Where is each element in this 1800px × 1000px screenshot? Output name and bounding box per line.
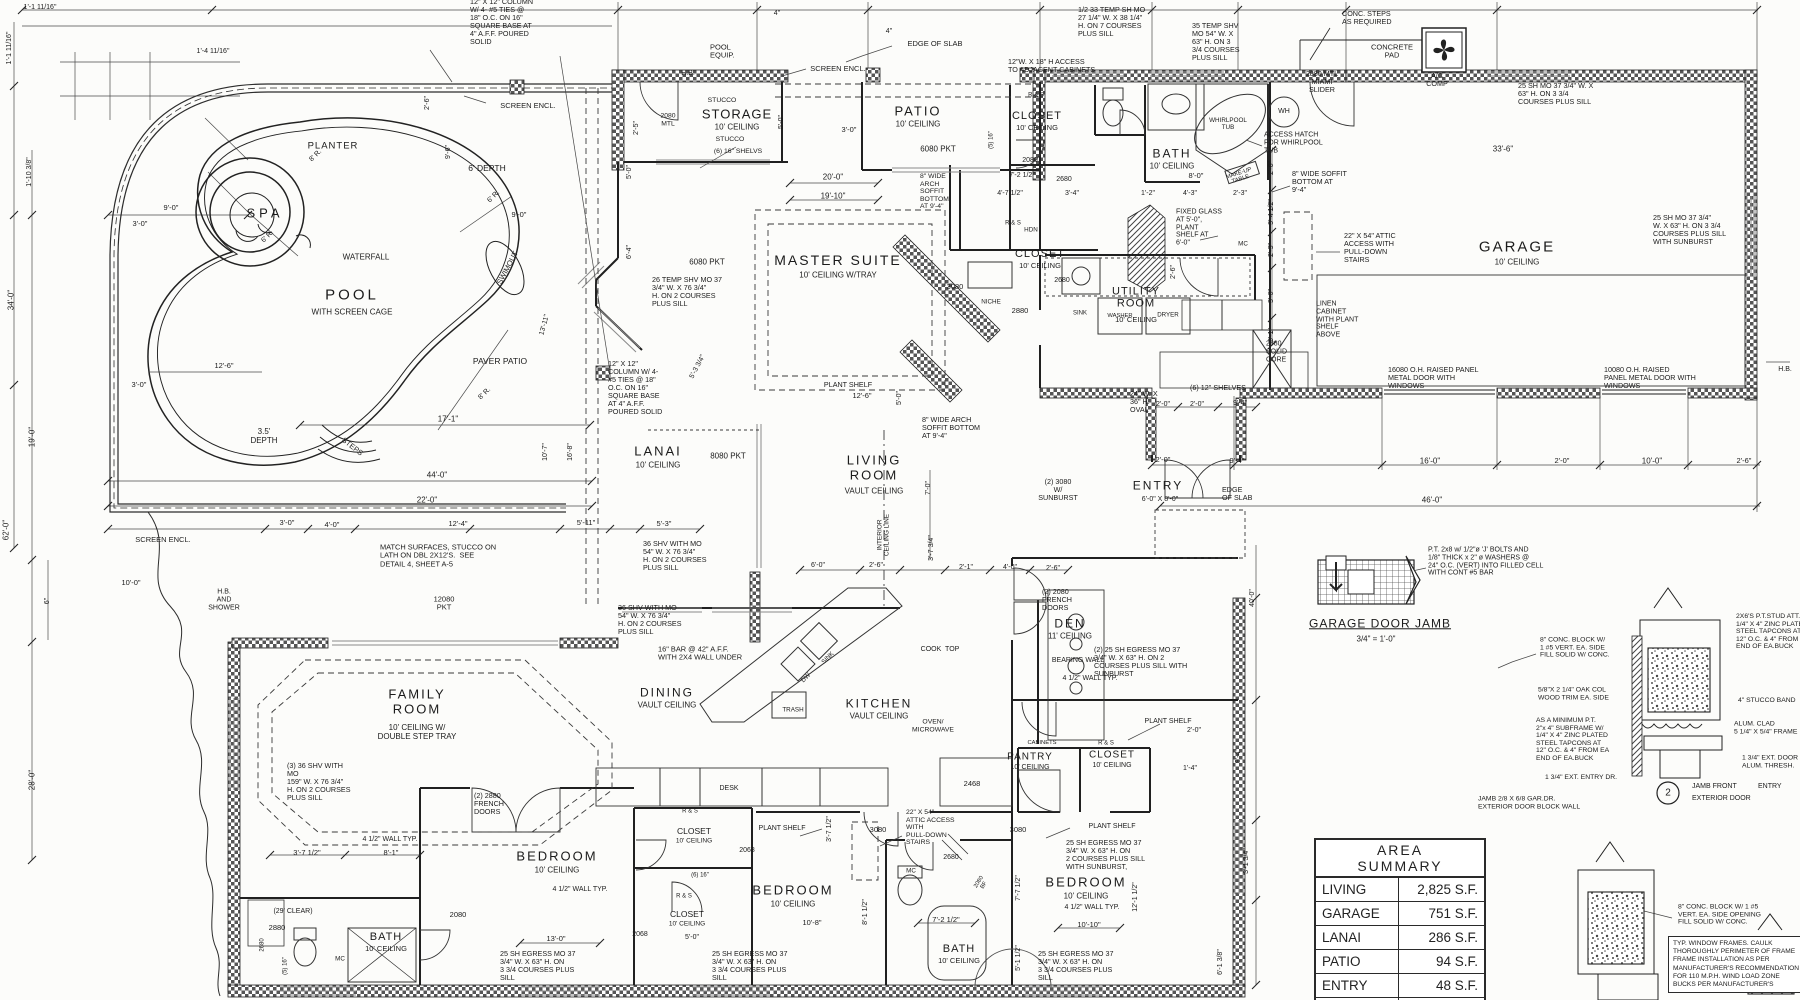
dim-10-8: 10'-8": [802, 919, 821, 927]
dim-7-2c: 7'-2 1/2": [1009, 172, 1035, 180]
note-miami-slider: 2880 MTL MIAMI SLIDER: [1306, 70, 1338, 94]
note-jamb-gar: JAMB 2/8 X 6/8 GAR.DR. EXTERIOR DOOR BLO…: [1478, 795, 1580, 810]
room-patio: PATIO: [894, 105, 941, 120]
dim-46-0: 46'-0": [1422, 497, 1442, 506]
dim-12-6-b: 12'-6": [852, 392, 871, 400]
note-screen-encl-1: SCREEN ENCL.: [500, 102, 555, 110]
note-oven: OVEN/ MICROWAVE: [912, 718, 954, 733]
dim-2680-c1: 2680: [1056, 176, 1072, 184]
dim-3-1r: 3'-1": [1268, 328, 1276, 342]
note-column-1: 12" X 12" COLUMN W/ 4- #5 TIES @ 18" O.C…: [470, 0, 533, 46]
note-hb-shower: H.B. AND SHOWER: [208, 588, 240, 611]
dim-2-0b: 2'-0": [1156, 456, 1171, 464]
dim-corner-4: 1'-10 3/8": [26, 157, 34, 187]
note-sh25-right: 25 SH MO 37 3/4" W. X 63" H. ON 3 3/4 CO…: [1653, 214, 1726, 246]
dim-corner-2: 1'-1 11/16": [6, 32, 14, 65]
note-shelv-16: (6) 16" SHELVS: [714, 148, 762, 156]
note-depth-35: 3.5' DEPTH: [250, 428, 277, 446]
note-cook-top: COOK TOP: [921, 646, 960, 654]
room-entry: ENTRY: [1133, 479, 1183, 492]
dim-2880-m: 2880: [1012, 307, 1029, 315]
note-french-den: (2) 2080 FRENCH DOORS: [1042, 588, 1072, 612]
room-bath-left: BATH: [370, 931, 403, 943]
dim-4-7c: 4'-7 1/2": [997, 190, 1023, 198]
note-attic-2: 22" X 54" ATTIC ACCESS WITH PULL-DOWN ST…: [906, 809, 955, 847]
room-bath-master: BATH: [1152, 147, 1191, 160]
dim-3-41r: 3'-4 1/2": [1268, 199, 1276, 225]
room-pantry-sub: 10' CEILING: [1010, 764, 1049, 772]
area-value: 286 S.F.: [1398, 926, 1484, 950]
note-hdn: HDN: [1024, 226, 1038, 233]
dim-9-4r: 9'-4": [1235, 749, 1243, 763]
dim-2068-a: 2068: [739, 847, 755, 855]
note-rs-3: R & S: [682, 809, 698, 816]
dim-10-7r: 10'-7": [542, 443, 550, 461]
note-soffit-garage: 8" WIDE SOFFIT BOTTOM AT 9'-4": [1292, 170, 1347, 194]
note-screen-encl-3: SCREEN ENCL.: [135, 536, 190, 544]
dim-10-0: 10'-0": [1642, 458, 1662, 467]
dim-8-1: 8'-1": [384, 849, 399, 857]
room-closet3: CLOSET: [1089, 749, 1135, 760]
room-utility: UTILITY ROOM: [1112, 286, 1160, 311]
dim-16-0: 16'-0": [1420, 458, 1440, 467]
area-value: 94 S.F.: [1398, 950, 1484, 974]
dim-4-0: 4'-0": [1003, 564, 1017, 572]
dim-2680-c: 2680: [943, 854, 959, 862]
note-access-hatch: ACCESS HATCH FOR WHIRLPOOL TUB: [1264, 131, 1323, 154]
note-french-bed1: (2) 2880 FRENCH DOORS: [474, 792, 504, 816]
dim-4a: 4": [774, 10, 780, 18]
note-family-shv: (3) 36 SHV WITH MO 159" W. X 76 3/4" H. …: [287, 762, 351, 802]
dim-4b: 4": [886, 28, 892, 36]
room-pool-sub: WITH SCREEN CAGE: [312, 309, 393, 318]
area-label: LIVING: [1316, 878, 1398, 902]
dim-5-0r2: 5'-0": [626, 165, 634, 179]
note-access-cab: 12"W. X 18" H ACCESS TO ADJACENT CABINET…: [1008, 58, 1095, 74]
dim-34-0: 34'-0": [8, 290, 17, 310]
dim-2-3r: 2'-3": [1268, 243, 1276, 257]
dim-8080: 8080 PKT: [710, 453, 746, 462]
dim-17-1: 17'-1": [438, 416, 458, 425]
area-label: GARAGE: [1316, 902, 1398, 926]
note-sink-k: SINK: [820, 650, 835, 665]
dim-7-7r: 7'-7 1/2": [1015, 875, 1023, 901]
room-dining: DINING: [640, 686, 694, 699]
note-edge-slab-2: EDGE OF SLAB: [1222, 486, 1252, 502]
note-sink-utility: SINK: [1073, 311, 1087, 318]
note-arch-soffit-2: 8" WIDE ARCH SOFFIT BOTTOM AT 9'-4": [922, 416, 980, 440]
room-entry-sub: 6'-0" X 8'-0": [1142, 496, 1178, 504]
room-closet1: CLOSET: [1012, 110, 1062, 122]
note-rs-5: R & S: [1098, 741, 1114, 748]
note-jamb-entry: ENTRY: [1758, 783, 1782, 791]
table-row: LIVING2,825 S.F.: [1316, 878, 1484, 902]
dim-5-11: 5'-11": [577, 519, 596, 527]
note-temp-shv-26: 26 TEMP SHV MO 37 3/4" W. X 76 3/4" H. O…: [652, 276, 722, 308]
note-oak-trim: 5/8"X 2 1/4" OAK COL WOOD TRIM EA. SIDE: [1538, 686, 1609, 701]
note-screen-encl-2: SCREEN ENCL.: [810, 65, 865, 73]
dim-20-0: 20'-0": [823, 174, 843, 183]
note-swimout: SWIMOUT: [496, 250, 520, 286]
note-match: MATCH SURFACES, STUCCO ON LATH ON DBL 2X…: [380, 544, 496, 569]
room-living-sub: VAULT CEILING: [845, 488, 904, 497]
table-row: LANAI286 S.F.: [1316, 926, 1484, 950]
dim-16-8r: 16'-8": [567, 443, 575, 461]
dim-10-10: 10'-10": [1077, 921, 1100, 929]
room-closet1-sub: 10' CEILING: [1016, 124, 1058, 132]
note-stucco-1: STUCCO: [708, 97, 737, 105]
note-shelves-12: (6) 12" SHELVES: [1190, 384, 1246, 392]
note-ac-comp: A/C COMP: [1426, 72, 1448, 88]
dim-5-3: 5'-3": [657, 520, 672, 528]
note-egress-sunburst: 25 SH EGRESS MO 37 3/4" W. X 63" H. ON 2…: [1066, 839, 1145, 871]
dim-2880-l: 2880: [269, 924, 286, 932]
note-egress-2: 25 SH EGRESS MO 37 3/4" W. X 63" H. ON 3…: [712, 950, 788, 982]
note-alum-thresh: 1 3/4" EXT. DOOR ALUM. THRESH.: [1742, 754, 1798, 769]
dim-6080-patio: 6080 PKT: [920, 146, 956, 155]
note-mc-2: MC: [906, 867, 916, 874]
dim-9-6r: 9'-6": [445, 145, 453, 159]
note-alum-clad: ALUM. CLAD 5 1/4" X 5/4" FRAME: [1734, 720, 1797, 735]
room-bed2-sub: 10' CEILING: [771, 901, 816, 910]
note-hb-right: H.B.: [1778, 366, 1792, 374]
room-closet-s1-sub: 10' CEILING: [676, 837, 712, 844]
note-steps: STEPS: [340, 436, 365, 458]
room-closet2: CLOSET: [1015, 248, 1065, 260]
note-jamb-front: JAMB FRONT: [1692, 783, 1737, 791]
note-clear-29: (29' CLEAR): [273, 908, 312, 916]
dim-3080-m: 3080: [947, 283, 964, 291]
dim-1-2: 1'-2": [1141, 190, 1155, 198]
note-paver-patio: PAVER PATIO: [473, 357, 527, 367]
dim-6r-b: 6' R.: [260, 229, 276, 245]
dim-9-0a: 9'-0": [164, 204, 179, 212]
dim-5-0-c: 5'-0": [685, 934, 699, 942]
dim-3-73r: 3'-7 3/4": [928, 535, 936, 561]
note-plant-shelf-4: PLANT SHELF: [1145, 718, 1192, 726]
room-den: DEN: [1054, 617, 1085, 630]
window-frames-note: TYP. WINDOW FRAMES. CAULK THOROUGHLY PER…: [1668, 936, 1800, 993]
dim-4-3: 4'-3": [1183, 190, 1197, 198]
room-storage-sub: 10' CEILING: [715, 124, 760, 133]
room-lanai-sub: 10' CEILING: [636, 462, 681, 471]
note-door-16080: 16080 O.H. RAISED PANEL METAL DOOR WITH …: [1388, 366, 1479, 390]
dim-8-0: 8'-0": [1189, 172, 1204, 180]
note-mc-3: MC: [335, 955, 345, 962]
note-wall-typ-b: 4 1/2" WALL TYP.: [552, 886, 607, 894]
room-closet-s1: CLOSET: [677, 827, 711, 837]
note-fixed-glass: FIXED GLASS AT 5'-0", PLANT SHELF AT 6'-…: [1176, 208, 1222, 247]
note-dryer: DRYER: [1157, 313, 1179, 320]
dim-6-4r: 6'-4": [626, 245, 634, 259]
dim-2-5r: 2'-5": [633, 121, 641, 135]
note-edge-slab-1: EDGE OF SLAB: [907, 40, 962, 48]
dim-corner-1: 1'-1 11/16": [24, 4, 57, 12]
room-bath-left-sub: 10' CEILING: [365, 945, 407, 953]
room-pool: POOL: [325, 288, 379, 305]
room-closet-s2-sub: 10' CEILING: [669, 920, 705, 927]
note-attic-1: 22" X 54" ATTIC ACCESS WITH PULL-DOWN ST…: [1344, 232, 1396, 264]
note-516: (5) 16": [283, 957, 290, 975]
dim-2-0e: 2'-0": [1187, 727, 1201, 735]
dim-3-7-f: 3'-7 1/2": [293, 849, 320, 857]
dim-9-4a: 9'-4": [1230, 457, 1245, 465]
dim-5-33r: 5'-3 3/4": [689, 354, 708, 380]
dim-2080-c1: 2080: [1022, 157, 1038, 165]
note-pt-2x8: P.T. 2x8 w/ 1/2"ø 'J' BOLTS AND 1/8" THI…: [1428, 546, 1543, 577]
note-rs-2: R & S: [1005, 221, 1021, 228]
note-whirlpool: WHIRLPOOL TUB: [1209, 117, 1247, 131]
note-rs-1: R & S: [1028, 93, 1044, 100]
dim-6-0: 6'-0": [811, 562, 825, 570]
note-hb-1: H.B.: [681, 70, 695, 78]
dim-2-3: 2'-3": [1233, 190, 1247, 198]
room-garage-sub: 10' CEILING: [1495, 259, 1540, 268]
detail-2-number: 2: [1665, 787, 1671, 798]
room-kitchen: KITCHEN: [846, 697, 913, 710]
dim-13-0: 13'-0": [546, 935, 565, 943]
floor-plan-sheet: SPAPOOLWITH SCREEN CAGEPLANTERWATERFALLS…: [0, 0, 1800, 1000]
note-bar16: 16" BAR @ 42" A.F.F. WITH 2X4 WALL UNDER: [658, 646, 742, 663]
room-living: LIVING ROOM: [847, 453, 902, 482]
dim-6-1r: 6'-1 3/8": [1217, 949, 1225, 975]
dim-2-6r2: 2'-6": [424, 96, 432, 110]
room-master-sub: 10' CEILING W/TRAY: [799, 272, 876, 281]
dim-5-0r3: 5'-0": [778, 115, 786, 129]
room-bath-center: BATH: [943, 943, 976, 955]
dim-62-0: 62'-0": [3, 520, 12, 540]
area-summary-table: AREA SUMMARY LIVING2,825 S.F.GARAGE751 S…: [1314, 838, 1486, 1000]
note-sunburst-3080: (2) 3080 W/ SUNBURST: [1038, 478, 1078, 502]
dim-3-13r: 3'-1 3/4": [1243, 848, 1251, 874]
room-storage: STORAGE: [702, 108, 772, 123]
dim-7-2: 7'-2 1/2": [932, 916, 959, 924]
dim-28-0: 28'-0": [29, 770, 38, 790]
note-plant-shelf-m: PLANT SHELF: [824, 381, 872, 389]
note-washer: WASHER: [1107, 313, 1132, 319]
dim-3-0r: 3'-0": [1268, 289, 1276, 303]
area-label: ENTRY: [1316, 974, 1398, 998]
note-egress-1: 25 SH EGRESS MO 37 3/4" W. X 63" H. ON 3…: [500, 950, 576, 982]
note-temp-sh-12: 1/2 33 TEMP SH MO 27 1/4" W. X 38 1/4" H…: [1078, 6, 1145, 38]
note-column-2: 12" X 12" COLUMN W/ 4- #5 TIES @ 18" O.C…: [608, 360, 662, 416]
dim-2080-mtl: 2080 MTL: [660, 112, 675, 127]
dim-19-10: 19'-10": [821, 193, 846, 202]
dim-6r-a: 6' R.: [486, 189, 502, 205]
note-conc-block-2: 8" CONC. BLOCK W/ 1 #5 VERT. EA. SIDE OP…: [1678, 904, 1761, 927]
room-closet-s2: CLOSET: [670, 910, 704, 920]
room-bath-center-sub: 10' CEILING: [938, 957, 980, 965]
dim-2-6b: 2'-6": [1046, 565, 1060, 573]
dim-10-0b: 10'-0": [121, 579, 140, 587]
room-family-sub: 10' CEILING W/ DOUBLE STEP TRAY: [378, 724, 457, 742]
dim-3-0b: 3'-0": [280, 519, 295, 527]
note-depth-6: 6' DEPTH: [468, 164, 506, 174]
dim-9-4b: 9'-4": [1233, 400, 1247, 408]
dim-2-6r3: 2'-6": [1170, 265, 1178, 279]
dim-6a: 6": [44, 598, 52, 604]
room-den-sub: 11' CEILING: [1048, 633, 1092, 642]
table-row: ENTRY48 S.F.: [1316, 974, 1484, 998]
note-subframe: AS A MINIMUM P.T. 2"x 4" SUBFRAME W/ 1/4…: [1536, 717, 1609, 763]
note-jamb-ext-door: EXTERIOR DOOR: [1692, 795, 1751, 803]
note-wall-typ-f: 4 1/2" WALL TYP.: [362, 836, 417, 844]
dim-2-6r1: 2'-6": [1268, 161, 1276, 175]
room-family: FAMILY ROOM: [388, 687, 445, 716]
dim-8r-b: 8' R.: [477, 386, 493, 402]
note-shv36-1: 36 SHV WITH MO 54" W. X 76 3/4" H. ON 2 …: [643, 540, 707, 572]
note-temp-shv-35: 35 TEMP SHV MO 54" W. X 63" H. ON 3 3/4 …: [1192, 22, 1240, 62]
room-spa: SPA: [246, 207, 283, 222]
room-closet3-sub: 10' CEILING: [1092, 762, 1131, 770]
dim-2-0a: 2'-0": [1555, 457, 1570, 465]
note-cabinets: CABINETS: [1028, 740, 1057, 746]
note-egress-den: (2) 25 SH EGRESS MO 37 3/4" W. X 63" H. …: [1094, 646, 1187, 678]
note-arch-soffit-1: 8" WIDE ARCH SOFFIT BOTTOM AT 9'-4": [920, 173, 949, 211]
room-patio-sub: 10' CEILING: [896, 121, 941, 130]
dim-3080-b: 3080: [1010, 826, 1027, 834]
dim-2680-c2: 2680: [1054, 277, 1070, 285]
room-pantry: PANTRY: [1007, 751, 1053, 762]
dim-3-0d: 3'-0": [133, 220, 148, 228]
note-pool-equip: POOL EQUIP.: [710, 44, 734, 61]
dim-33-6: 33'-6": [1493, 146, 1513, 155]
dim-12080: 12080 PKT: [434, 596, 455, 613]
table-row: PATIO94 S.F.: [1316, 950, 1484, 974]
title-garage-door-jamb-scale: 3/4" = 1'-0": [1356, 636, 1395, 645]
note-concrete-pad: CONCRETE PAD: [1371, 44, 1413, 61]
dim-12-6: 12'-6": [214, 362, 233, 370]
dim-7-0r: 7'-0": [925, 481, 933, 495]
area-value: 48 S.F.: [1398, 974, 1484, 998]
dim-2080-bf: 2080 BF: [973, 875, 991, 893]
dim-12-1r: 12'-1 1/2": [1132, 882, 1140, 912]
dim-2-1: 2'-1": [959, 564, 973, 572]
dim-19-0: 19'-0": [29, 427, 38, 447]
dim-44-0: 44'-0": [427, 472, 447, 481]
room-bed3: BEDROOM: [1045, 876, 1126, 891]
dim-3-4c: 3'-4": [1065, 190, 1079, 198]
note-sh25-top: 25 SH MO 37 3/4" W. X 63" H. ON 3 3/4 CO…: [1518, 82, 1593, 106]
note-616: (6) 16": [691, 873, 709, 880]
dim-2-6a: 2'-6": [869, 562, 883, 570]
note-rs-4: R & S: [676, 894, 692, 901]
area-label: LANAI: [1316, 926, 1398, 950]
area-label: PATIO: [1316, 950, 1398, 974]
dim-2-0c: 2'-0": [1156, 401, 1170, 409]
title-garage-door-jamb: GARAGE DOOR JAMB: [1309, 617, 1451, 630]
note-shv36-2: 36 SHV WITH MO 54" W. X 76 3/4" H. ON 2 …: [618, 604, 682, 636]
room-dining-sub: VAULT CEILING: [638, 702, 697, 711]
note-2x6-stud: 2X6'S P.T.STUD ATT. 1/4" X 4" ZINC PLATE…: [1736, 613, 1800, 651]
dim-2068-b: 2068: [632, 931, 648, 939]
note-conc-steps: CONC. STEPS AS REQUIRED: [1342, 10, 1392, 26]
area-summary-title: AREA SUMMARY: [1316, 840, 1484, 878]
note-conc-block-1: 8" CONC. BLOCK W/ 1 #5 VERT. EA. SIDE FI…: [1540, 637, 1610, 660]
room-bed2: BEDROOM: [752, 884, 833, 899]
dim-2-0d: 2'-0": [1190, 401, 1204, 409]
room-garage: GARAGE: [1479, 240, 1555, 257]
note-ext-entry-dr: 1 3/4" EXT. ENTRY DR.: [1545, 774, 1617, 782]
note-dw: DW: [800, 672, 812, 684]
note-stucco-band: 4" STUCCO BAND: [1738, 697, 1796, 705]
room-bed3-sub: 10' CEILING: [1064, 893, 1109, 902]
note-waterfall: WATERFALL: [343, 254, 390, 263]
dim-3-0a: 3'-0": [842, 126, 857, 134]
room-bed1: BEDROOM: [516, 850, 597, 865]
note-trash: TRASH: [782, 706, 803, 713]
note-makeup: MAKE-UP TABLE: [1225, 167, 1254, 187]
note-wall-typ-r: 4 1/2" WALL TYP.: [1064, 904, 1119, 912]
room-bed1-sub: 10' CEILING: [535, 867, 580, 876]
dim-5-0r: 5'-0": [896, 391, 904, 405]
dim-12-4: 12'-4": [448, 520, 467, 528]
dim-2080-l: 2080: [450, 911, 467, 919]
dim-2-6c: 2'-6": [1737, 457, 1752, 465]
note-egress-3: 25 SH EGRESS MO 37 3/4" W. X 63" H. ON 3…: [1038, 950, 1114, 982]
room-kitchen-sub: VAULT CEILING: [850, 713, 909, 722]
note-desk: DESK: [719, 785, 738, 793]
note-solid-core: 2880 SOLID CORE: [1266, 340, 1287, 363]
area-value: 751 S.F.: [1398, 902, 1484, 926]
dim-8-1r: 8'-1 1/2": [862, 899, 870, 925]
dim-3-0c: 3'-0": [132, 381, 147, 389]
note-linen: LINEN CABINET WITH PLANT SHELF ABOVE: [1316, 300, 1358, 339]
area-value: 2,825 S.F.: [1398, 878, 1484, 902]
area-summary-rows: LIVING2,825 S.F.GARAGE751 S.F.LANAI286 S…: [1316, 878, 1484, 1000]
table-row: GARAGE751 S.F.: [1316, 902, 1484, 926]
note-plant-shelf-2: PLANT SHELF: [759, 825, 806, 833]
dim-4-0b: 4'-0": [325, 521, 340, 529]
dim-3-7r: 3'-7 1/2": [826, 816, 834, 842]
dim-corner-3: 1'-4 11/16": [197, 48, 230, 56]
dim-13-11r: 13'-11": [538, 314, 551, 337]
dim-6080-master: 6080 PKT: [689, 259, 725, 268]
note-plant-shelf-3: PLANT SHELF: [1089, 823, 1136, 831]
note-niche: NICHE: [981, 298, 1001, 305]
note-mc-1: MC: [1238, 240, 1248, 247]
room-lanai: LANAI: [634, 445, 682, 460]
note-516c: (5) 16": [989, 131, 996, 149]
dim-22-0: 22'-0": [417, 497, 437, 506]
room-closet2-sub: 10' CEILING: [1019, 262, 1061, 270]
dim-3080-a: 3080: [870, 826, 887, 834]
note-stucco-2: STUCCO: [716, 136, 745, 144]
room-master: MASTER SUITE: [774, 253, 901, 269]
dim-1-4: 1'-4": [1183, 765, 1197, 773]
note-door-10080: 10080 O.H. RAISED PANEL METAL DOOR WITH …: [1604, 366, 1696, 390]
dim-9-0b: 9'-0": [512, 211, 527, 219]
dim-2680-l: 2680: [260, 938, 267, 951]
note-interior-ceiling: INTERIOR CEILING LINE: [877, 514, 892, 556]
dim-5-1r: 5'-1 1/2": [1015, 945, 1023, 971]
note-oval: 24" W. X 36" H. OVAL: [1130, 390, 1158, 414]
dim-2468: 2468: [964, 780, 981, 788]
note-wh: WH: [1278, 108, 1290, 116]
annotation-labels: SPAPOOLWITH SCREEN CAGEPLANTERWATERFALLS…: [0, 0, 1800, 1000]
dim-40-0r: 40'-0": [1249, 589, 1257, 607]
